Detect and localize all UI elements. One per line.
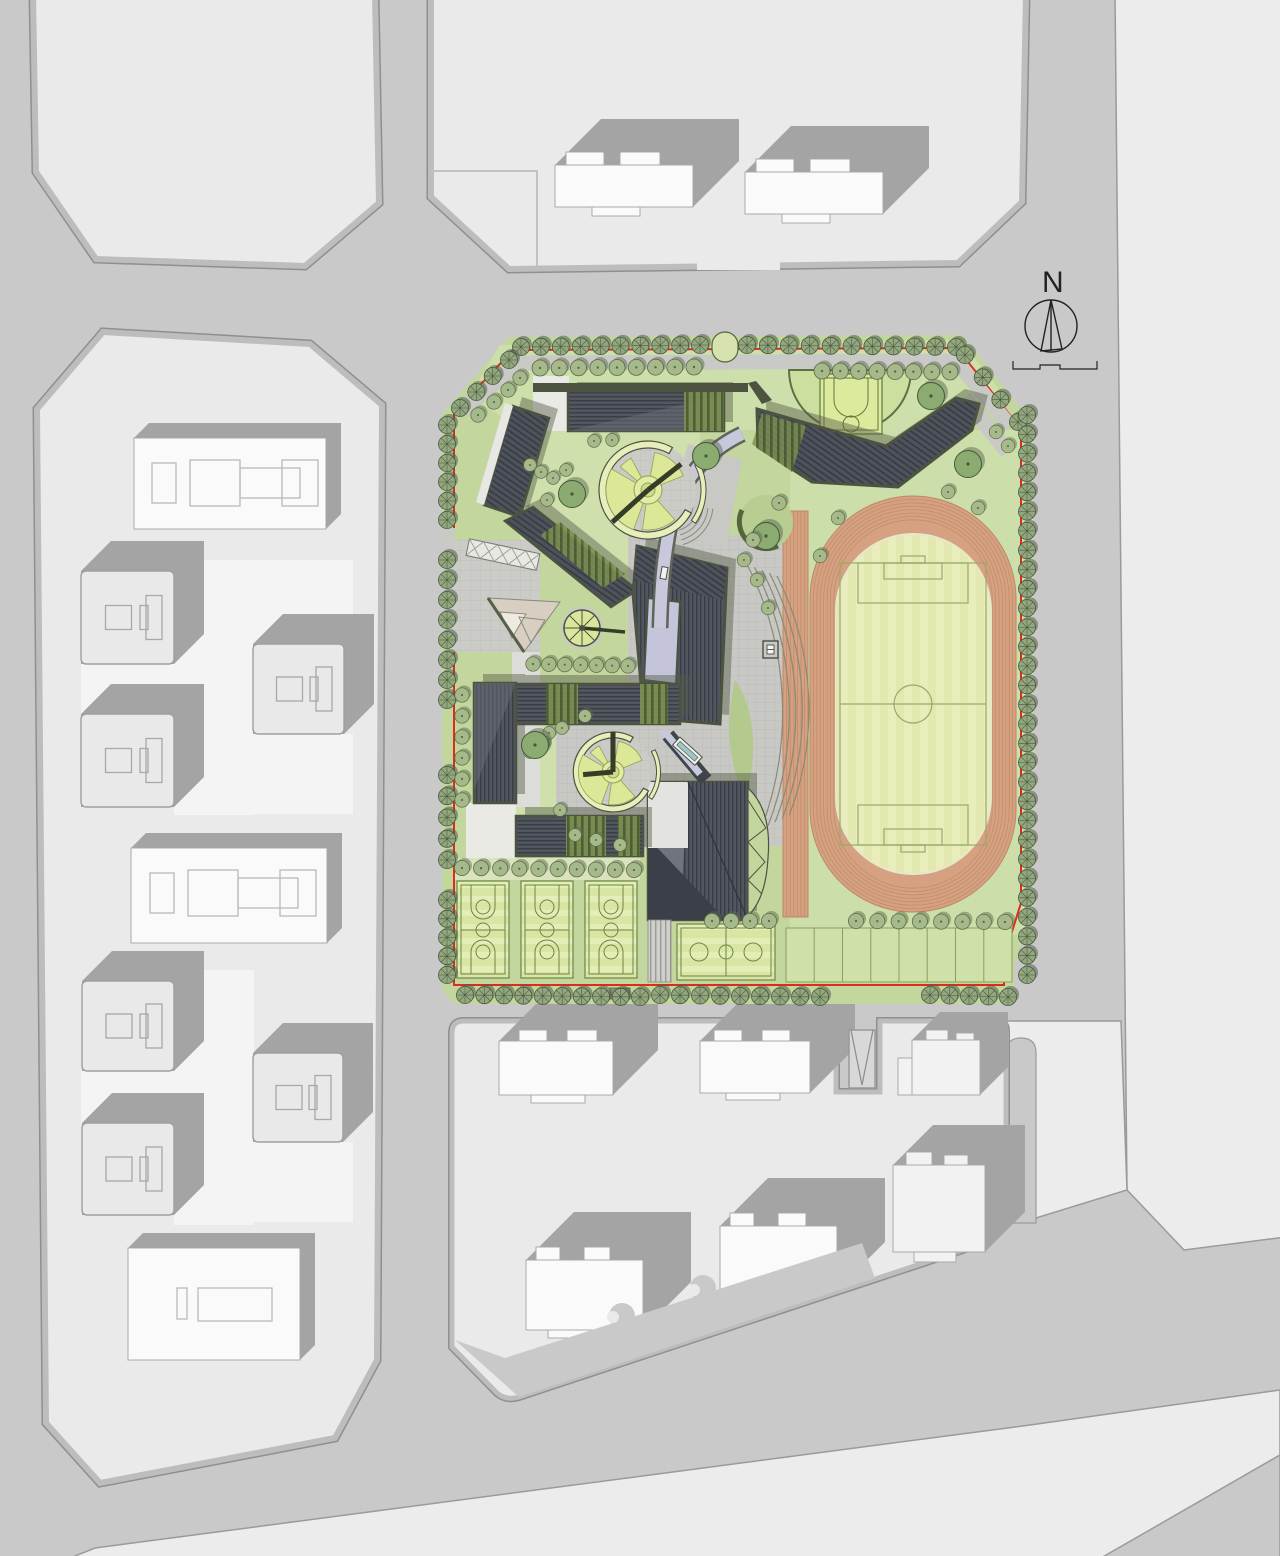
svg-text:N: N	[1042, 266, 1064, 299]
